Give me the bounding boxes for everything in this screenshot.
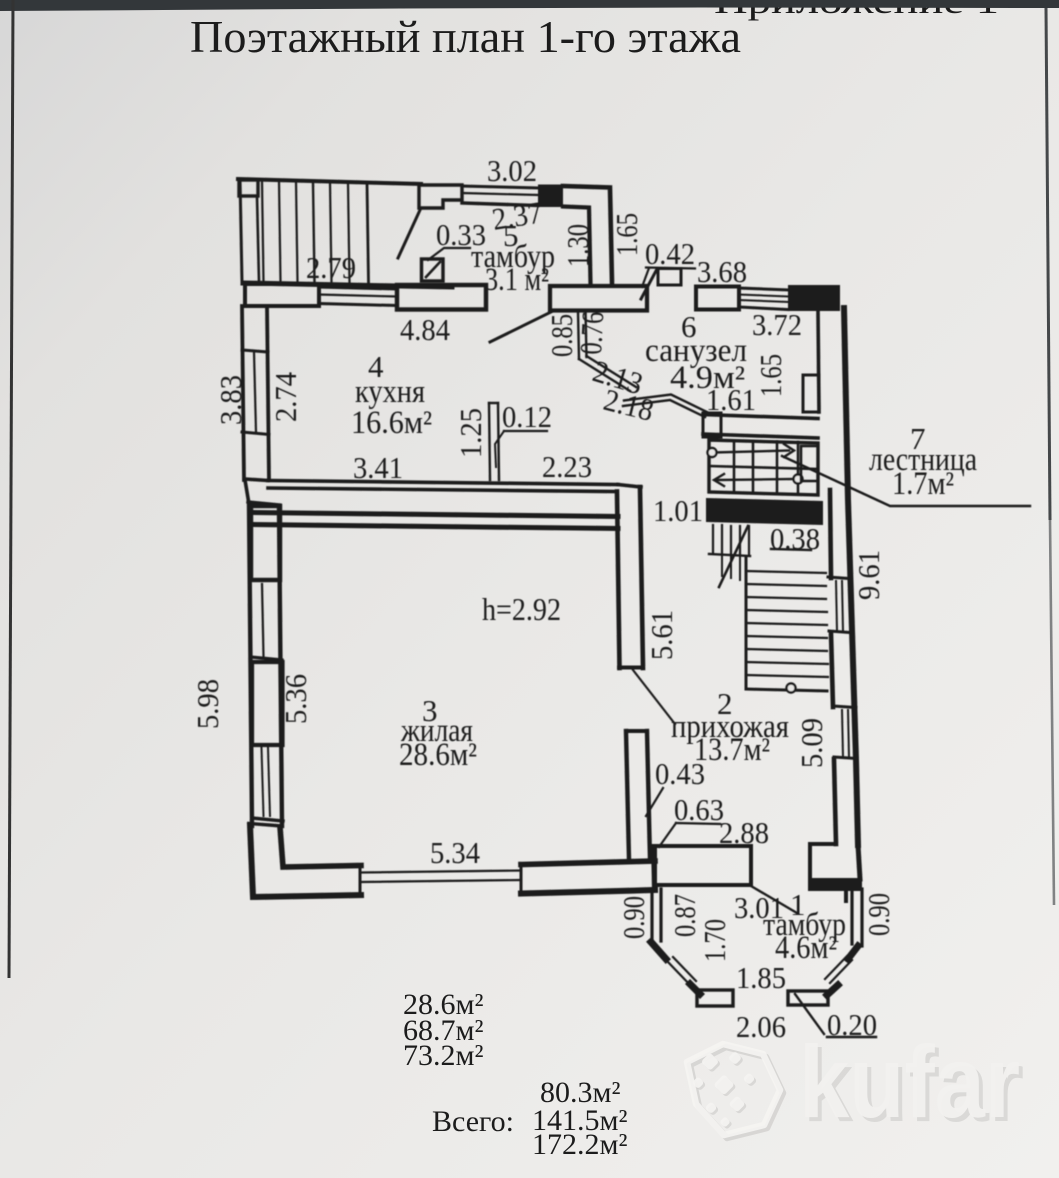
svg-text:5.09: 5.09 (794, 718, 829, 768)
svg-text:kufar: kufar (799, 1025, 1020, 1139)
svg-text:2.06: 2.06 (736, 1009, 786, 1044)
svg-text:3.83: 3.83 (213, 375, 248, 425)
svg-text:28.6м²: 28.6м² (399, 737, 477, 773)
svg-text:1.30: 1.30 (560, 224, 595, 267)
svg-text:1.01: 1.01 (653, 493, 703, 528)
svg-text:5.36: 5.36 (278, 674, 313, 724)
svg-text:4.84: 4.84 (400, 312, 450, 347)
svg-text:0.90: 0.90 (616, 896, 651, 939)
svg-text:73.2м²: 73.2м² (403, 1039, 483, 1072)
svg-text:3.02: 3.02 (487, 153, 537, 188)
svg-text:Всего:: Всего: (432, 1105, 514, 1138)
svg-text:1.7м²: 1.7м² (892, 466, 954, 502)
svg-text:1.70: 1.70 (697, 919, 732, 962)
svg-text:0.12: 0.12 (502, 399, 552, 434)
svg-text:5.34: 5.34 (430, 835, 480, 870)
svg-text:0.42: 0.42 (645, 236, 695, 271)
svg-text:1.65: 1.65 (609, 213, 644, 256)
svg-text:2.79: 2.79 (306, 250, 356, 285)
svg-text:172.2м²: 172.2м² (532, 1128, 627, 1161)
svg-text:2.88: 2.88 (719, 815, 769, 850)
svg-text:0.63: 0.63 (674, 792, 724, 827)
svg-text:2.23: 2.23 (542, 449, 592, 484)
svg-text:16.6м²: 16.6м² (351, 405, 432, 441)
svg-text:Поэтажный план 1-го этажа: Поэтажный план 1-го этажа (190, 12, 741, 62)
svg-text:1.25: 1.25 (453, 408, 488, 458)
svg-text:5.61: 5.61 (644, 610, 679, 660)
svg-text:2.74: 2.74 (268, 372, 303, 422)
svg-text:3.72: 3.72 (752, 307, 802, 342)
svg-text:0.90: 0.90 (861, 893, 896, 936)
svg-text:0.76: 0.76 (573, 311, 610, 356)
svg-text:9.61: 9.61 (851, 550, 886, 600)
svg-text:4.6м²: 4.6м² (775, 930, 837, 966)
svg-text:0.38: 0.38 (770, 521, 820, 556)
svg-text:3.41: 3.41 (353, 450, 403, 485)
svg-text:1.65: 1.65 (753, 354, 788, 397)
svg-text:h=2.92: h=2.92 (482, 591, 561, 627)
svg-text:3.1 м²: 3.1 м² (485, 262, 549, 298)
svg-text:5.98: 5.98 (190, 679, 225, 729)
svg-text:13.7м²: 13.7м² (694, 732, 770, 768)
svg-text:3.68: 3.68 (697, 254, 747, 289)
svg-text:4.9м²: 4.9м² (670, 360, 745, 396)
